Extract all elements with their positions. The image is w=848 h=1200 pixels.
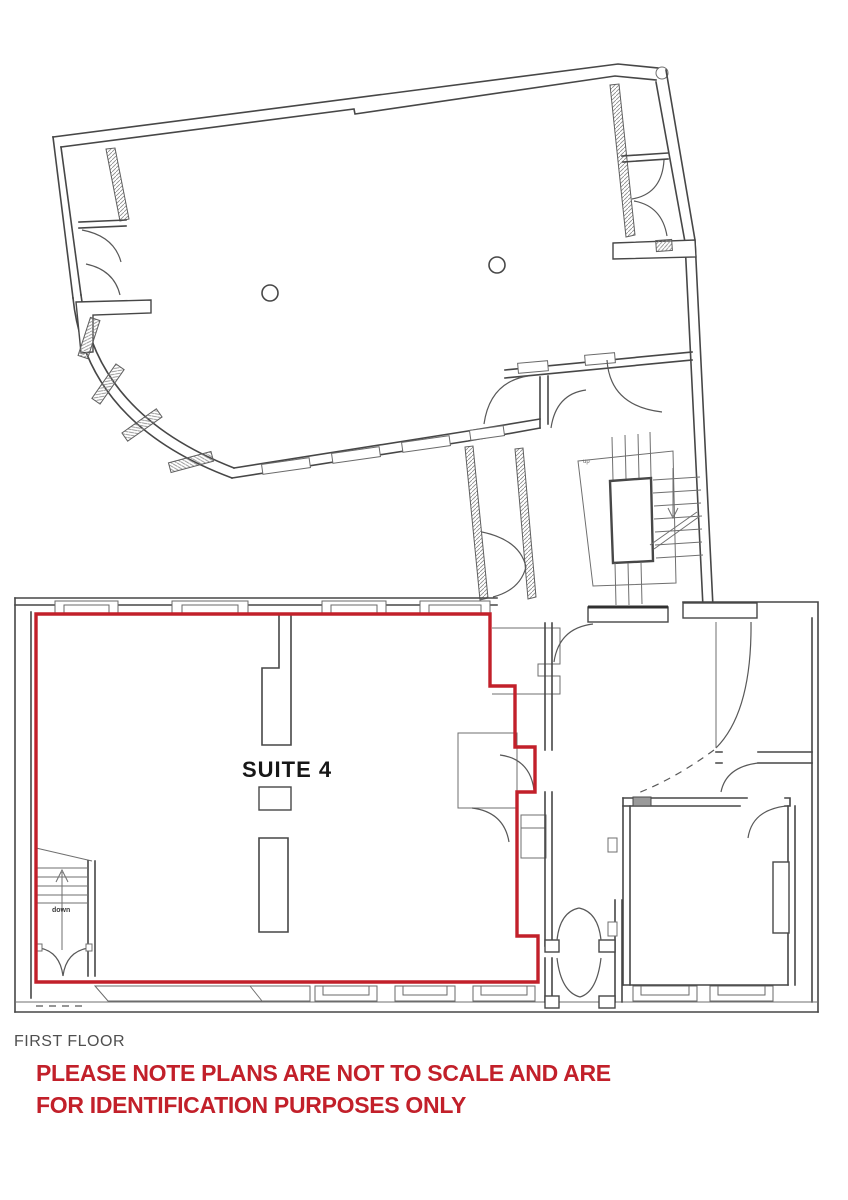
window bbox=[518, 361, 549, 374]
entrance-door-swing bbox=[716, 622, 751, 748]
upper-left-room bbox=[76, 148, 151, 353]
bottom-right-room bbox=[608, 797, 795, 985]
alcove bbox=[773, 862, 789, 933]
lower-floor-plan: down bbox=[15, 598, 818, 1012]
suite4-label: SUITE 4 bbox=[242, 757, 332, 782]
hatched-wall bbox=[610, 84, 635, 237]
upper-floor-plan: up bbox=[53, 64, 713, 607]
bottom-window-bays bbox=[95, 986, 773, 1001]
hatched-wall bbox=[465, 446, 488, 600]
hatched-wall bbox=[515, 448, 536, 599]
window bbox=[656, 239, 673, 251]
window bbox=[585, 353, 616, 366]
top-right-room bbox=[716, 752, 812, 792]
middle-rooms bbox=[458, 624, 593, 858]
floor-plan-page: up bbox=[0, 0, 848, 1200]
vestibule-doors bbox=[545, 900, 622, 1008]
stair-down-label: down bbox=[52, 907, 70, 914]
stair-newel bbox=[610, 478, 653, 563]
floor-title: FIRST FLOOR bbox=[14, 1033, 125, 1050]
lobby-wall bbox=[683, 603, 757, 618]
captions: FIRST FLOOR PLEASE NOTE PLANS ARE NOT TO… bbox=[14, 1033, 611, 1118]
hatched-wall bbox=[106, 148, 129, 221]
entrance-hall bbox=[638, 622, 751, 793]
stairs-lower: down bbox=[36, 848, 95, 976]
disclaimer-line1: PLEASE NOTE PLANS ARE NOT TO SCALE AND A… bbox=[36, 1060, 611, 1086]
floor-plan-drawing: up bbox=[0, 0, 848, 1200]
link-room bbox=[465, 446, 536, 600]
down-arrow bbox=[668, 468, 678, 518]
top-window-bays bbox=[55, 601, 490, 613]
door-swing-dashed bbox=[638, 750, 714, 793]
column bbox=[489, 257, 505, 273]
stair-up-label: up bbox=[583, 459, 590, 465]
vent bbox=[633, 797, 651, 806]
disclaimer-line2: FOR IDENTIFICATION PURPOSES ONLY bbox=[36, 1092, 466, 1118]
wall-stub bbox=[613, 240, 696, 259]
column bbox=[262, 285, 278, 301]
lobby-wall bbox=[588, 607, 668, 622]
stairwell-upper: up bbox=[578, 432, 703, 605]
